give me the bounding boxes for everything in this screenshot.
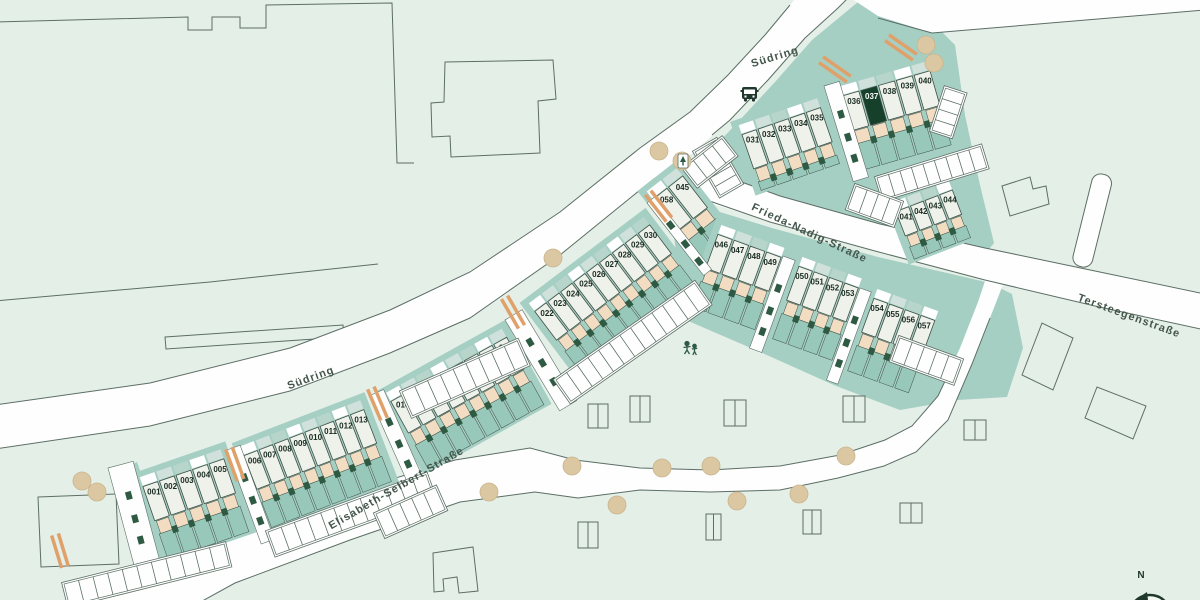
plot-label-042: 042: [914, 207, 928, 216]
tree-icon: [608, 496, 626, 514]
plot-label-026: 026: [592, 270, 606, 279]
plot-label-047: 047: [731, 246, 745, 255]
tree-icon: [653, 459, 671, 477]
plot-label-040: 040: [918, 77, 932, 86]
plot-label-050: 050: [795, 272, 809, 281]
plot-label-003: 003: [180, 476, 194, 485]
plot-label-002: 002: [164, 482, 178, 491]
plot-label-032: 032: [762, 130, 776, 139]
plot-label-024: 024: [566, 289, 580, 298]
plot-label-004: 004: [197, 470, 211, 479]
plot-label-028: 028: [618, 250, 632, 259]
plot-label-023: 023: [553, 299, 567, 308]
plot-label-001: 001: [147, 488, 161, 497]
compass-north-label: N: [1137, 570, 1144, 581]
plot-label-035: 035: [810, 113, 824, 122]
plot-label-039: 039: [901, 82, 915, 91]
plot-label-029: 029: [631, 241, 645, 250]
plot-label-048: 048: [747, 252, 761, 261]
plot-label-038: 038: [883, 87, 897, 96]
tree-icon: [728, 492, 746, 510]
plot-label-036: 036: [847, 97, 861, 106]
plot-label-053: 053: [841, 289, 855, 298]
info-sign-icon: [678, 154, 688, 168]
tree-icon: [73, 472, 91, 490]
plot-label-031: 031: [746, 136, 760, 145]
plot-label-022: 022: [540, 309, 554, 318]
plot-label-009: 009: [294, 439, 308, 448]
plot-label-030: 030: [644, 231, 658, 240]
plot-label-011: 011: [324, 427, 337, 436]
tree-icon: [917, 36, 935, 54]
tree-icon: [480, 483, 498, 501]
plot-label-034: 034: [794, 119, 808, 128]
tree-icon: [925, 54, 943, 72]
plot-label-052: 052: [826, 283, 840, 292]
tree-icon: [544, 249, 562, 267]
plot-label-046: 046: [715, 240, 729, 249]
plot-label-007: 007: [263, 451, 277, 460]
plot-label-057: 057: [917, 321, 931, 330]
plot-label-008: 008: [278, 445, 292, 454]
plot-label-013: 013: [354, 415, 368, 424]
plot-label-010: 010: [309, 433, 323, 442]
plot-label-012: 012: [339, 421, 353, 430]
plot-label-044: 044: [943, 196, 957, 205]
plot-label-005: 005: [213, 465, 227, 474]
plot-label-055: 055: [886, 310, 900, 319]
plot-label-054: 054: [870, 304, 884, 313]
plot-label-045: 045: [676, 183, 690, 192]
plot-label-027: 027: [605, 260, 619, 269]
plot-label-037: 037: [865, 92, 879, 101]
plot-label-049: 049: [763, 258, 777, 267]
tree-icon: [563, 457, 581, 475]
plot-label-051: 051: [811, 278, 825, 287]
plot-label-025: 025: [579, 280, 593, 289]
plot-label-033: 033: [778, 125, 792, 134]
map-canvas: 0010020030040050060070080090100110120130…: [0, 0, 1200, 600]
tree-icon: [650, 142, 668, 160]
tree-icon: [702, 457, 720, 475]
tree-icon: [837, 447, 855, 465]
plot-label-056: 056: [902, 316, 916, 325]
site-plan-map: 0010020030040050060070080090100110120130…: [0, 0, 1200, 600]
plot-label-006: 006: [248, 456, 262, 465]
plot-label-041: 041: [900, 212, 914, 221]
tree-icon: [88, 483, 106, 501]
tree-icon: [790, 485, 808, 503]
plot-label-043: 043: [929, 201, 943, 210]
